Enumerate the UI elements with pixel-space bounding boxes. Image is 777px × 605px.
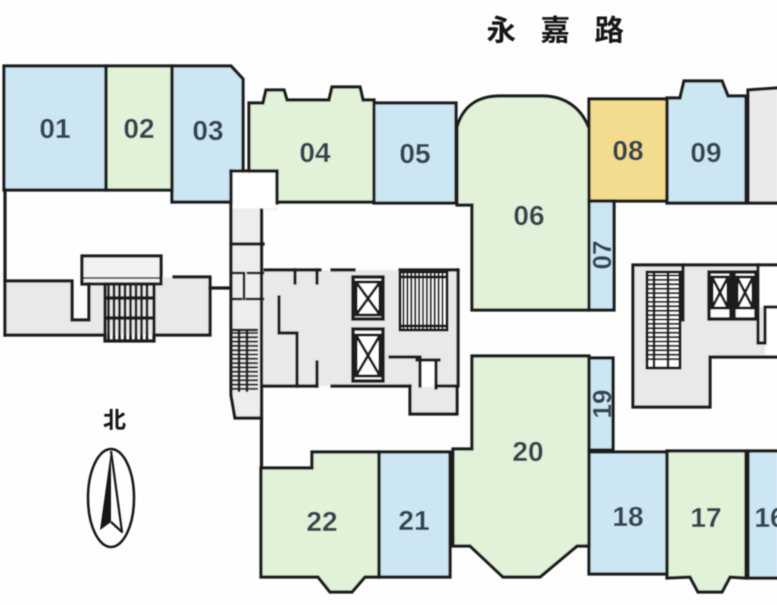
svg-text:04: 04 — [299, 137, 331, 168]
svg-text:22: 22 — [306, 506, 337, 537]
svg-text:17: 17 — [690, 502, 721, 533]
svg-text:09: 09 — [690, 137, 721, 168]
svg-text:05: 05 — [399, 138, 430, 169]
svg-text:07: 07 — [587, 241, 617, 270]
svg-text:20: 20 — [512, 436, 543, 467]
svg-text:08: 08 — [612, 135, 643, 166]
svg-text:03: 03 — [192, 115, 223, 146]
svg-text:21: 21 — [398, 505, 429, 536]
svg-text:02: 02 — [123, 113, 154, 144]
svg-text:19: 19 — [587, 390, 617, 419]
svg-text:01: 01 — [39, 113, 70, 144]
svg-text:06: 06 — [513, 200, 544, 231]
svg-text:18: 18 — [612, 501, 643, 532]
svg-text:16: 16 — [754, 502, 777, 533]
